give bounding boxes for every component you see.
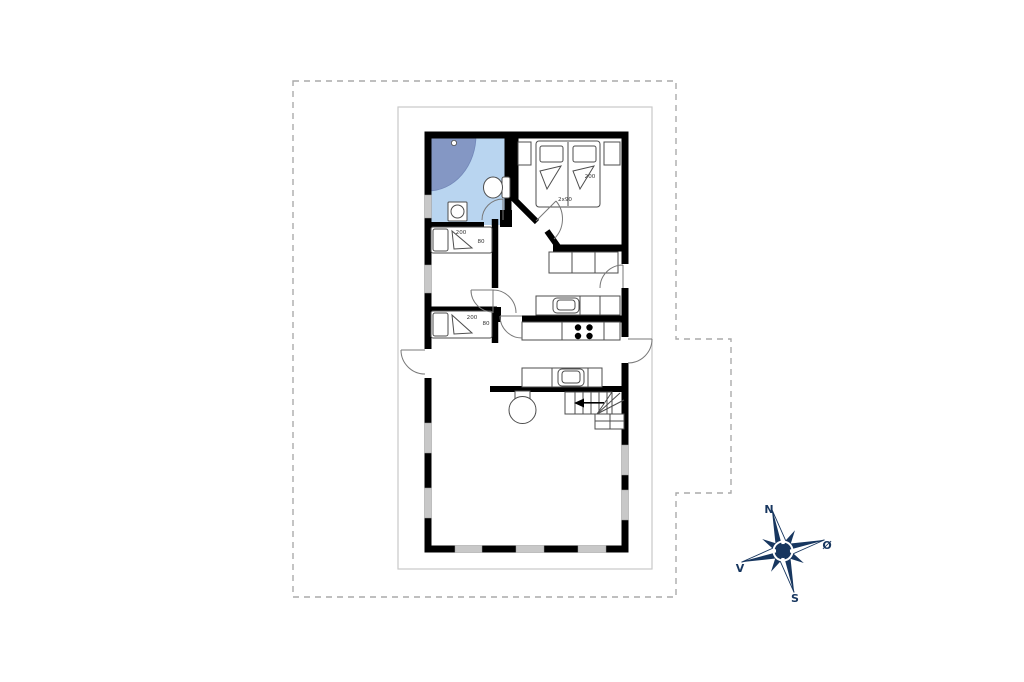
single-bed-2-pillow xyxy=(433,313,448,336)
compass-label-south: S xyxy=(791,592,799,605)
toilet-bowl-icon xyxy=(484,177,503,198)
wood-stove-icon xyxy=(509,397,536,424)
wall-node-bath xyxy=(500,210,512,227)
washing-machine-drum-icon xyxy=(451,205,464,218)
bed1-length-label: 200 xyxy=(456,230,467,236)
toilet-tank-icon xyxy=(502,177,510,198)
window-bottom-1 xyxy=(455,546,482,553)
compass-label-west: V xyxy=(736,562,745,575)
compass-label-east: Ø xyxy=(822,539,832,552)
kitchen-sink-basin-icon xyxy=(557,300,575,310)
bed2-width-label: 80 xyxy=(482,321,490,327)
burner-icon-3 xyxy=(575,333,581,339)
window-left-1 xyxy=(425,195,432,218)
window-left-4 xyxy=(425,488,432,518)
pillow-right xyxy=(573,146,596,162)
east-door-gap-1 xyxy=(621,264,630,288)
pillow-left xyxy=(540,146,563,162)
floor-plan-canvas: 200 2x90 200 80 200 80 xyxy=(0,0,1024,682)
double-bed-length-label: 200 xyxy=(585,174,596,180)
window-right-2 xyxy=(622,490,629,520)
burner-icon-1 xyxy=(575,324,581,330)
window-left-2 xyxy=(425,265,432,293)
bed1-width-label: 80 xyxy=(477,239,485,245)
window-right-1 xyxy=(622,445,629,475)
double-bed-size-label: 2x90 xyxy=(558,197,572,203)
stairs-arrow-tail xyxy=(584,402,604,404)
shower-head-icon xyxy=(451,140,456,145)
stove-counter xyxy=(522,322,620,340)
window-left-3 xyxy=(425,423,432,453)
east-door-gap-2 xyxy=(621,337,630,363)
utility-sink-basin-icon xyxy=(562,371,580,383)
window-bottom-3 xyxy=(578,546,606,553)
nightstand-left xyxy=(518,142,531,165)
window-bottom-2 xyxy=(516,546,544,553)
bed2-length-label: 200 xyxy=(467,315,478,321)
compass-label-north: N xyxy=(764,503,773,516)
nightstand-right xyxy=(604,142,620,165)
single-bed-1-pillow xyxy=(433,229,448,251)
burner-icon-2 xyxy=(586,324,592,330)
compass-rose: N Ø V S xyxy=(730,498,835,605)
wardrobe xyxy=(549,252,618,273)
burner-icon-4 xyxy=(586,333,592,339)
